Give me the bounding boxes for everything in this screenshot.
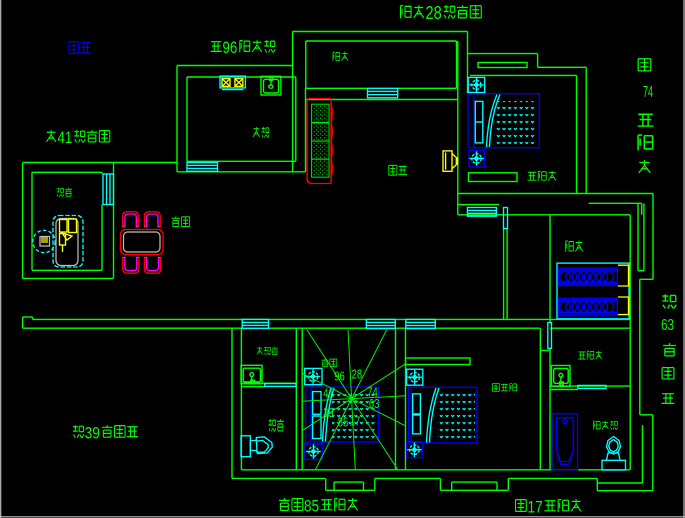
svg-text:41: 41 [58,129,73,147]
svg-text:85: 85 [304,497,319,516]
svg-text:85: 85 [338,416,349,430]
svg-text:41: 41 [323,387,334,401]
svg-text:39: 39 [85,423,100,442]
svg-text:17: 17 [527,498,542,517]
svg-text:63: 63 [661,317,674,334]
svg-text:96: 96 [223,39,238,57]
svg-text:28: 28 [352,368,363,382]
svg-text:74: 74 [643,84,653,101]
svg-text:17: 17 [350,414,361,428]
svg-text:28: 28 [426,3,442,23]
svg-text:39: 39 [323,406,334,420]
svg-text:63: 63 [369,397,380,411]
svg-text:96: 96 [334,369,345,383]
